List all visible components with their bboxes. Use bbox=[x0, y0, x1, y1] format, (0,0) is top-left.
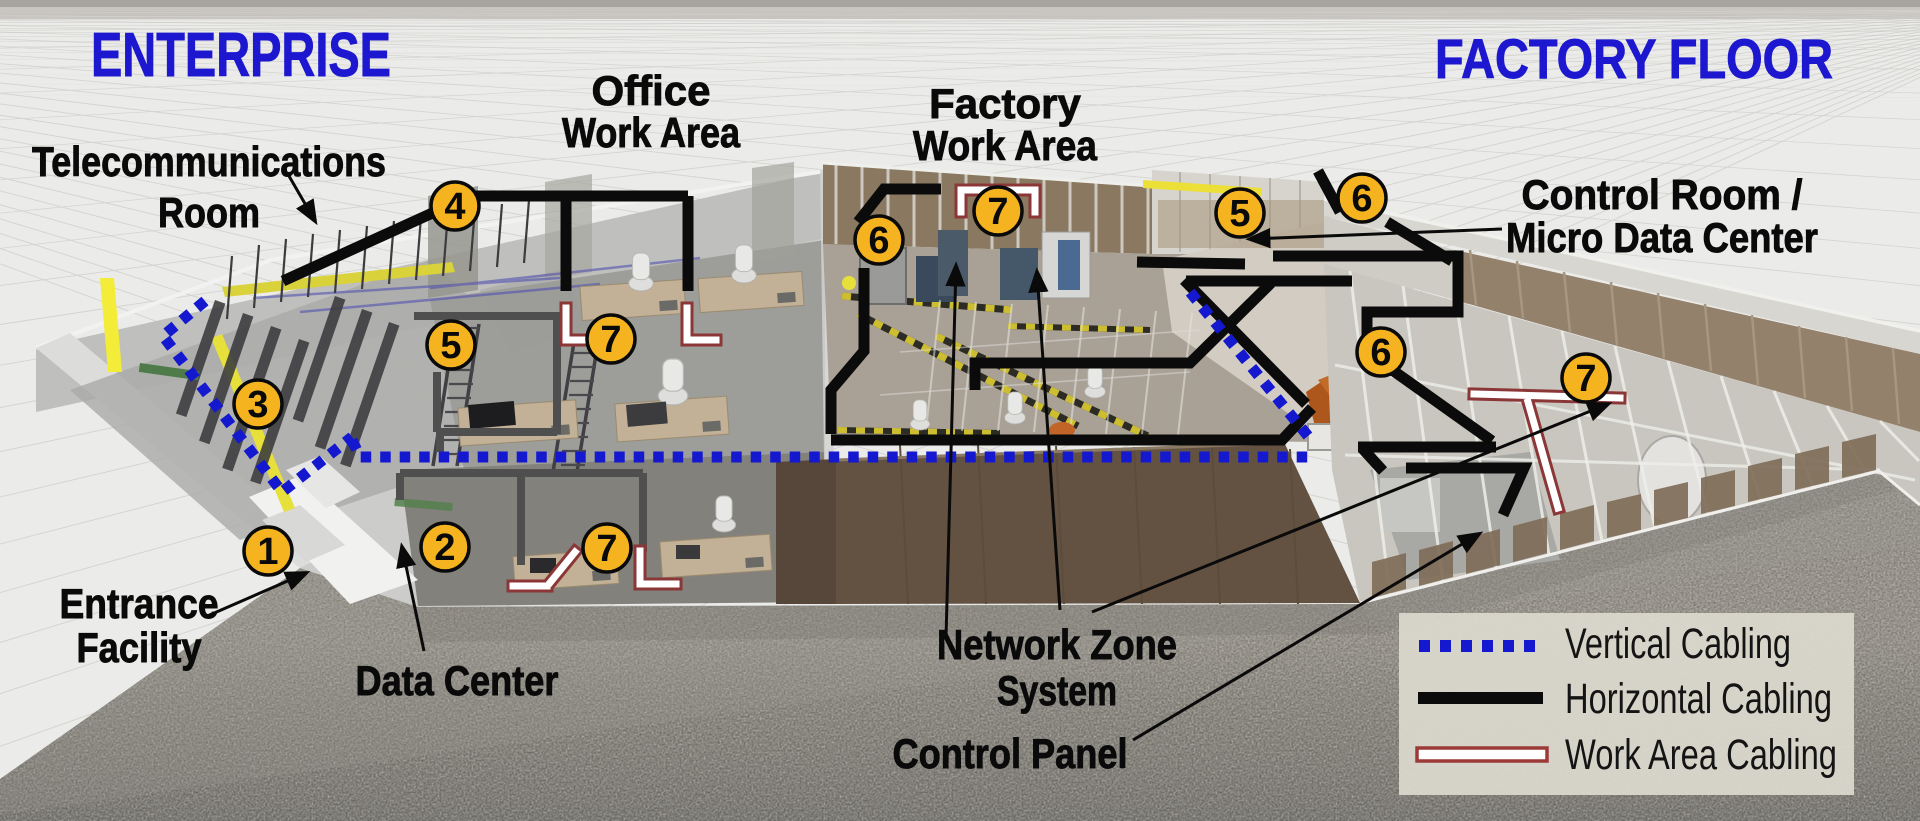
svg-text:7: 7 bbox=[1575, 358, 1596, 400]
svg-text:1: 1 bbox=[257, 531, 278, 573]
svg-text:2: 2 bbox=[434, 527, 455, 569]
svg-text:ENTERPRISE: ENTERPRISE bbox=[91, 21, 391, 90]
svg-text:Horizontal Cabling: Horizontal Cabling bbox=[1565, 675, 1832, 723]
svg-text:6: 6 bbox=[1370, 332, 1391, 374]
svg-text:Data Center: Data Center bbox=[356, 657, 559, 704]
svg-text:Micro Data Center: Micro Data Center bbox=[1506, 214, 1818, 261]
svg-text:Room: Room bbox=[158, 189, 260, 236]
svg-text:6: 6 bbox=[868, 220, 889, 262]
svg-text:Facility: Facility bbox=[77, 624, 203, 671]
svg-text:Control Room /: Control Room / bbox=[1522, 171, 1803, 218]
svg-text:FACTORY FLOOR: FACTORY FLOOR bbox=[1435, 27, 1833, 90]
svg-text:Office: Office bbox=[591, 67, 710, 114]
svg-text:Factory: Factory bbox=[929, 80, 1081, 127]
svg-text:Network Zone: Network Zone bbox=[937, 621, 1177, 668]
svg-text:5: 5 bbox=[1229, 193, 1250, 235]
svg-text:7: 7 bbox=[600, 319, 621, 361]
svg-text:Work Area Cabling: Work Area Cabling bbox=[1565, 731, 1837, 779]
svg-text:Work Area: Work Area bbox=[913, 122, 1098, 169]
svg-text:7: 7 bbox=[596, 528, 617, 570]
svg-text:5: 5 bbox=[440, 325, 461, 367]
svg-text:Work Area: Work Area bbox=[562, 109, 741, 156]
svg-text:Entrance: Entrance bbox=[60, 580, 219, 627]
svg-text:4: 4 bbox=[444, 186, 465, 228]
svg-text:Telecommunications: Telecommunications bbox=[32, 138, 386, 185]
svg-text:3: 3 bbox=[247, 384, 268, 426]
svg-text:6: 6 bbox=[1351, 178, 1372, 220]
svg-text:7: 7 bbox=[987, 191, 1008, 233]
svg-text:Vertical Cabling: Vertical Cabling bbox=[1565, 620, 1791, 668]
svg-text:Control Panel: Control Panel bbox=[893, 730, 1128, 777]
svg-text:System: System bbox=[997, 667, 1117, 714]
